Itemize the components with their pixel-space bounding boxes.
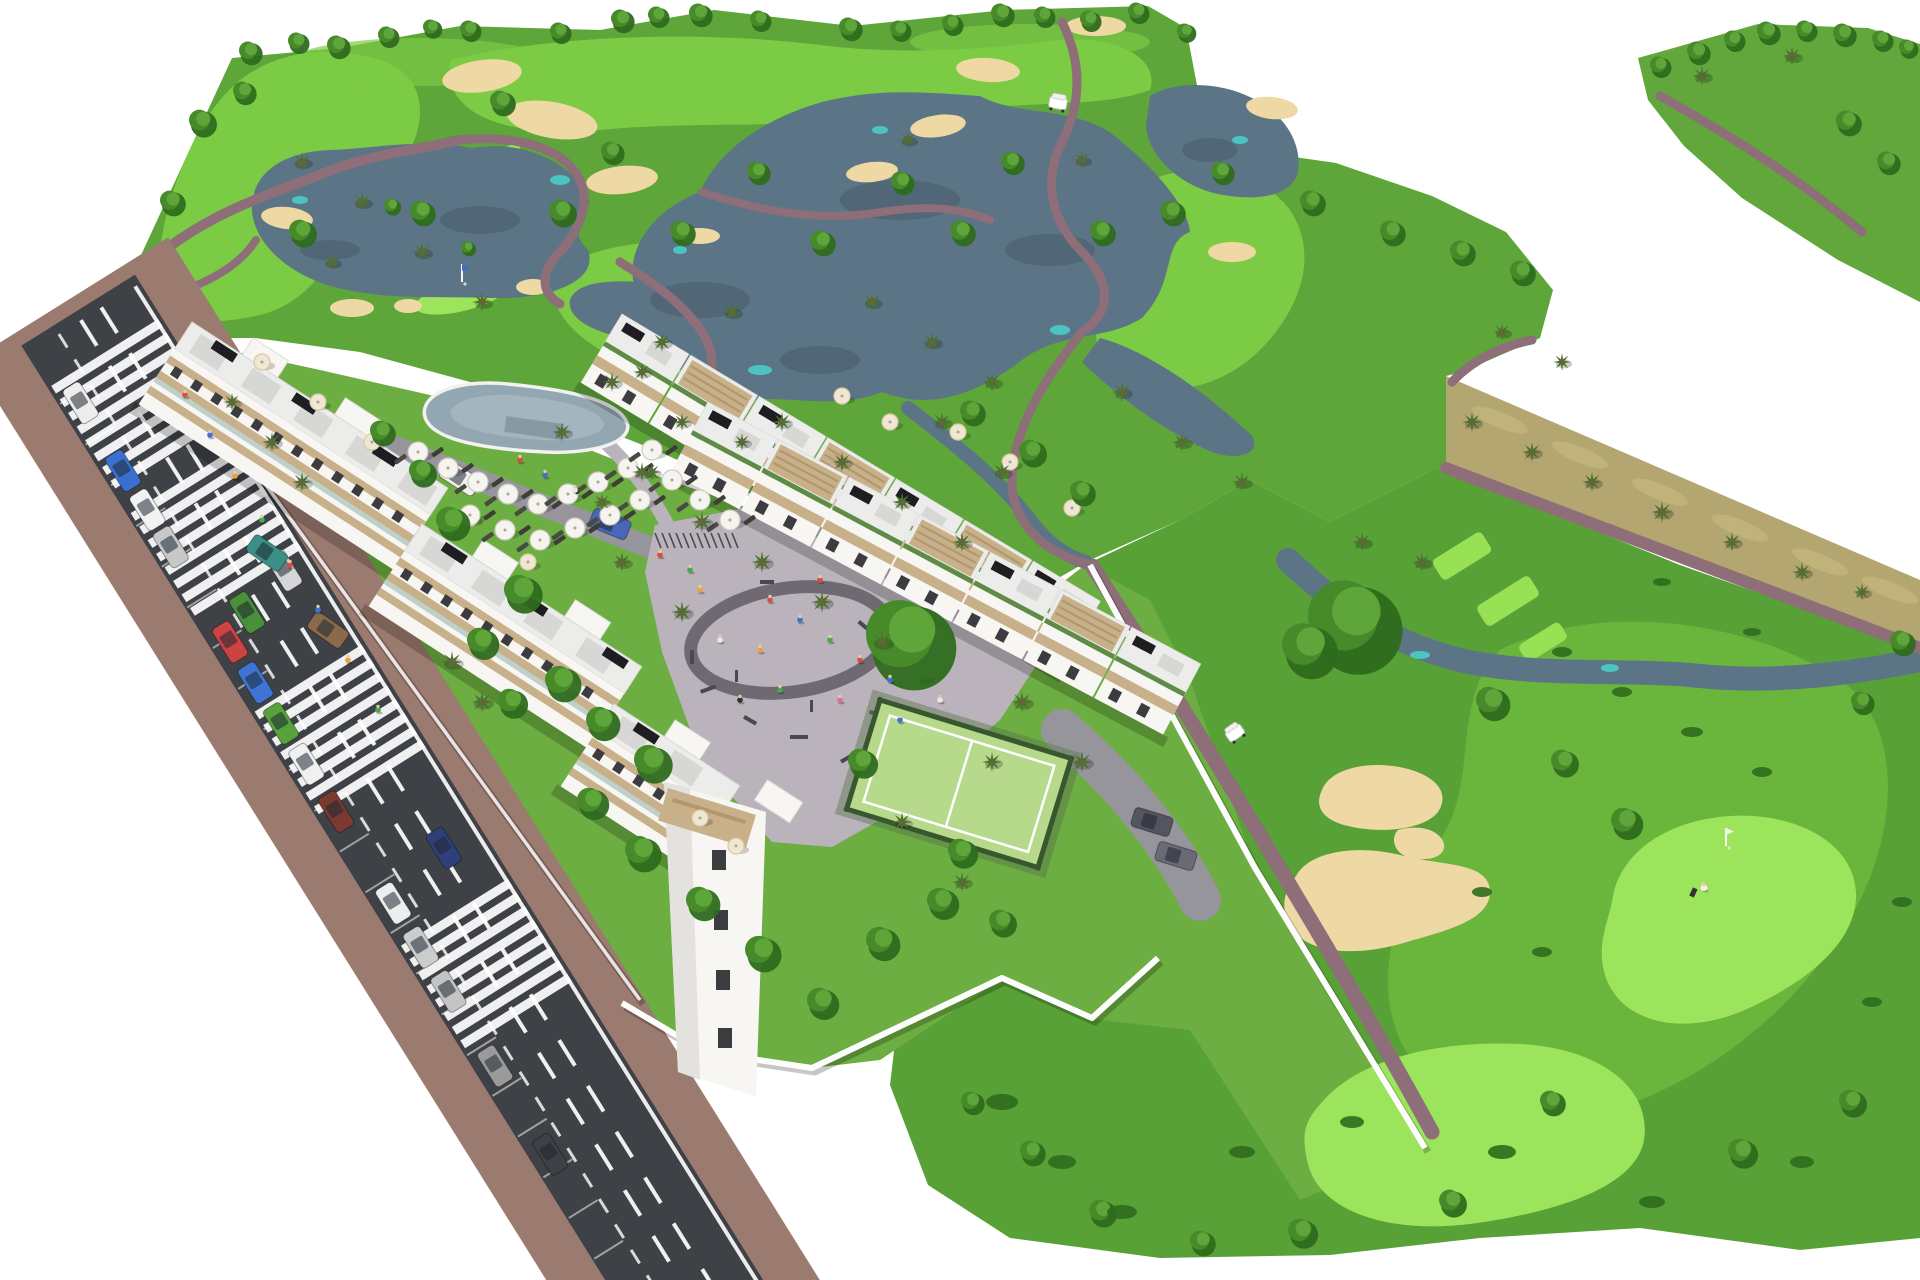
teal-patch <box>673 246 687 254</box>
teal-patch <box>1601 664 1619 672</box>
bush <box>1653 578 1671 586</box>
bush <box>1488 1145 1516 1159</box>
play-equipment <box>735 670 738 682</box>
bush <box>1612 687 1632 697</box>
bush <box>1552 647 1572 657</box>
sand-bunker <box>1208 242 1256 262</box>
bush <box>1743 628 1761 636</box>
teal-patch <box>1232 136 1248 144</box>
play-equipment <box>690 650 694 664</box>
water-reflection <box>780 346 860 374</box>
bush <box>1107 1205 1137 1219</box>
golf-hole <box>1727 846 1730 849</box>
play-equipment <box>810 700 813 712</box>
bush <box>1862 997 1882 1007</box>
teal-patch <box>1410 651 1430 659</box>
bush <box>1048 1155 1076 1169</box>
aerial-render <box>0 0 1920 1280</box>
play-equipment <box>760 580 774 584</box>
bush <box>1472 887 1492 897</box>
teal-patch <box>292 196 308 204</box>
sand-bunker <box>394 299 422 313</box>
bush <box>1752 767 1772 777</box>
bush <box>1790 1156 1814 1168</box>
sand-bunker <box>330 299 374 317</box>
bush <box>1681 727 1703 737</box>
teal-patch <box>1050 325 1070 335</box>
bush <box>986 1094 1018 1110</box>
bush <box>1229 1146 1255 1158</box>
water-reflection <box>1182 138 1238 162</box>
play-equipment <box>790 735 808 739</box>
bush <box>1532 947 1552 957</box>
teal-patch <box>550 175 570 185</box>
bush <box>1892 897 1912 907</box>
teal-patch <box>872 126 888 134</box>
water-reflection <box>440 206 520 234</box>
bush <box>1340 1116 1364 1128</box>
bush <box>1639 1196 1665 1208</box>
teal-patch <box>748 365 772 375</box>
golf-hole <box>463 282 466 285</box>
